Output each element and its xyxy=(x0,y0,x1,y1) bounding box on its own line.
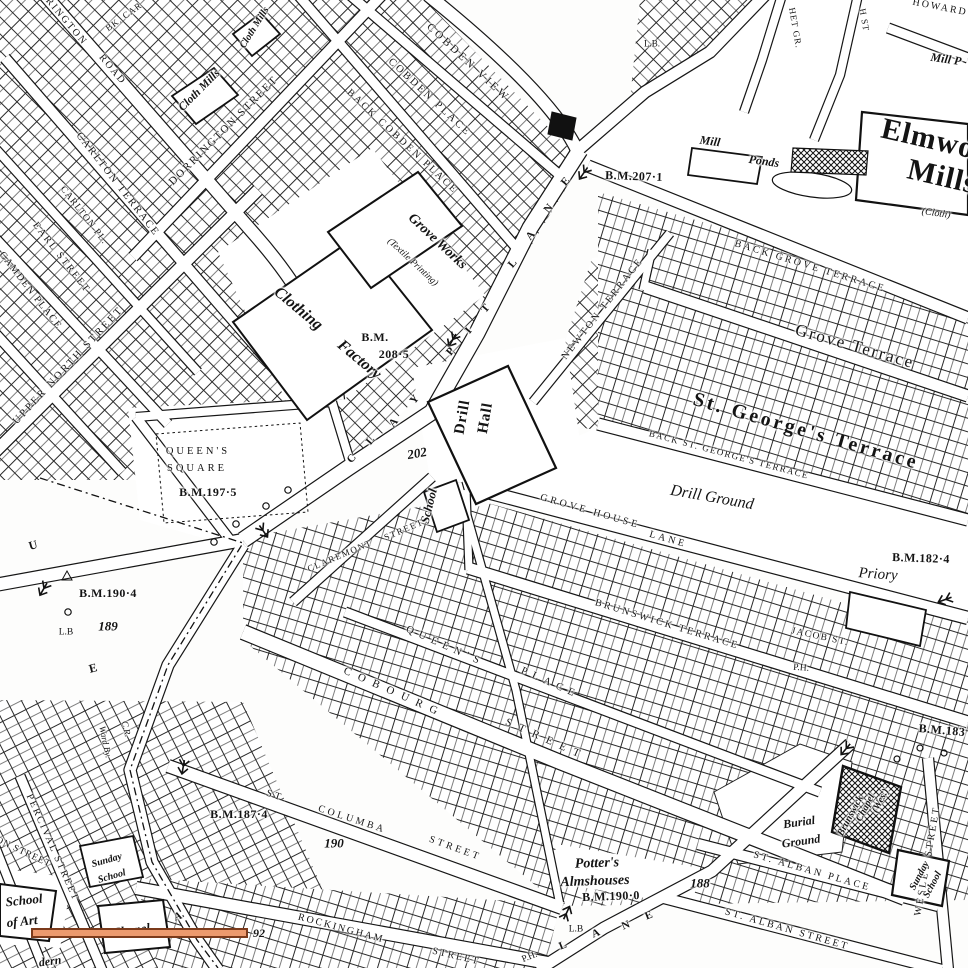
map-canvas[interactable]: RINGTONROADBK. CARCloth MillsCloth Mills… xyxy=(0,0,968,968)
highlight-bar xyxy=(31,928,248,938)
map-drawing xyxy=(0,0,968,968)
